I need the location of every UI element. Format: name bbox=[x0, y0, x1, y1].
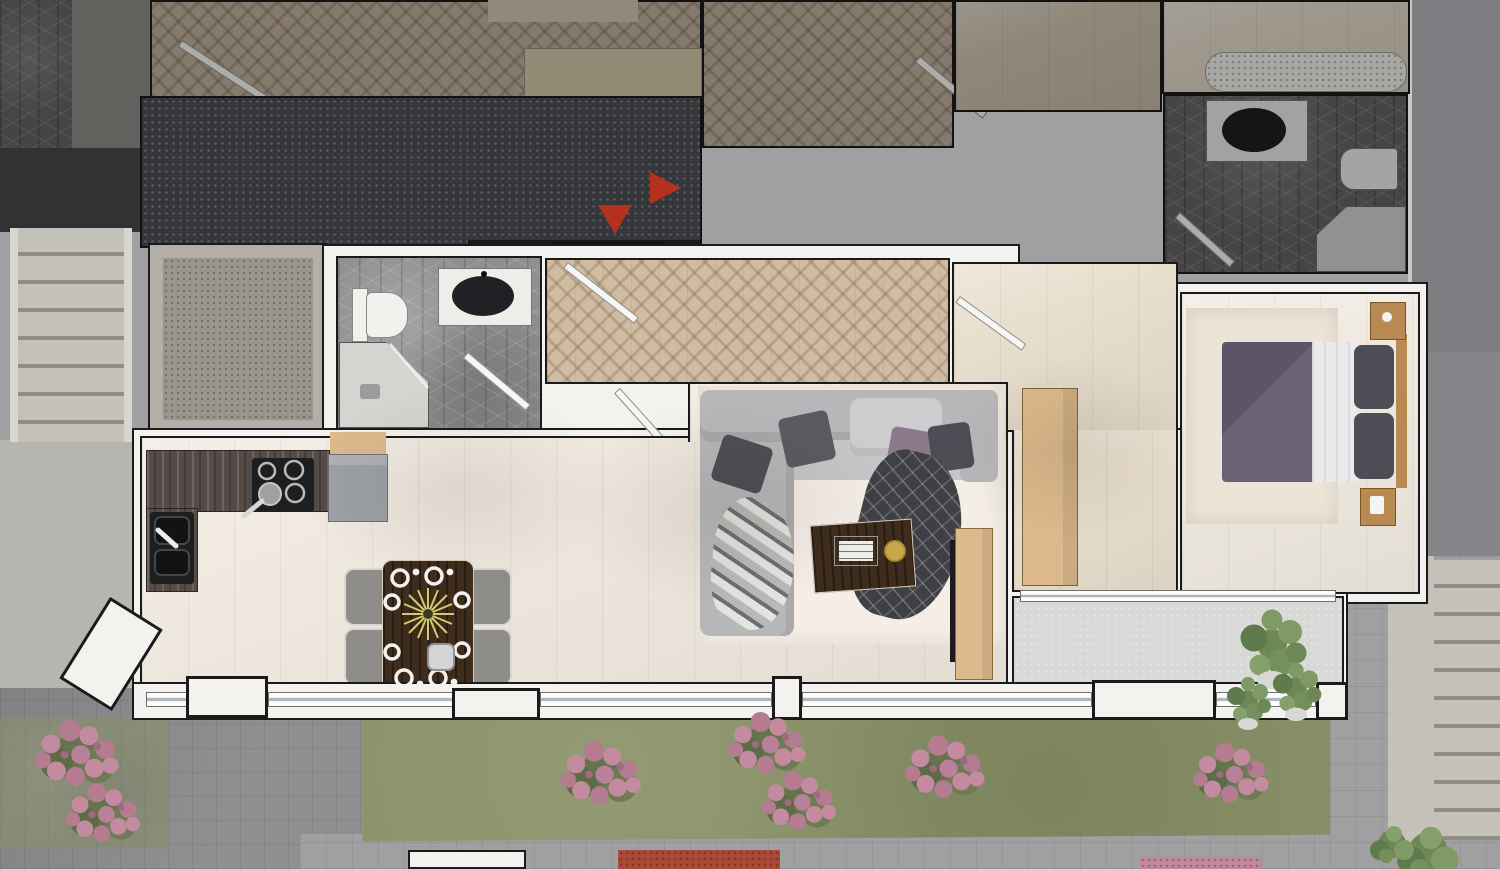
window-3 bbox=[540, 692, 772, 707]
neighbor-room-wood bbox=[954, 0, 1162, 112]
shadow-band-left bbox=[0, 148, 150, 232]
dining-chair-4 bbox=[470, 628, 512, 686]
elevator-cab bbox=[163, 258, 313, 420]
entrance-hall bbox=[545, 258, 950, 384]
facade-pier-2 bbox=[452, 688, 540, 720]
bed-headboard bbox=[1396, 334, 1407, 488]
kitchen-sink bbox=[150, 512, 194, 584]
facade-pier-1 bbox=[186, 676, 268, 718]
planter-box bbox=[408, 850, 526, 869]
nightstand-lamp-top bbox=[1382, 312, 1392, 322]
entrance-arrow-right-icon bbox=[650, 172, 681, 204]
neighbor-bench bbox=[1205, 52, 1407, 92]
washbasin bbox=[452, 276, 514, 316]
toilet-bowl bbox=[366, 292, 408, 338]
watermark-shade-2 bbox=[560, 400, 900, 610]
bed-duvet-purple bbox=[1222, 342, 1314, 482]
neighbor-bed bbox=[524, 48, 702, 100]
top-left-floor-fragment bbox=[72, 0, 150, 150]
neighbor-room-2 bbox=[702, 0, 954, 148]
neighbor-bed-headboard bbox=[488, 0, 638, 22]
exterior-steps bbox=[1432, 560, 1500, 840]
staircase bbox=[10, 228, 132, 442]
facade-pier-4 bbox=[1092, 680, 1216, 720]
facade-pier-5 bbox=[1316, 682, 1348, 720]
flower-bed-red bbox=[618, 850, 780, 869]
bed-pillow-top bbox=[1354, 345, 1394, 409]
flower-bed-pink bbox=[1140, 857, 1262, 869]
neighbor-basin bbox=[1222, 108, 1286, 152]
window-5 bbox=[1216, 692, 1316, 707]
lawn-strip bbox=[362, 709, 1343, 842]
lawn-patch-left bbox=[0, 718, 170, 848]
dining-chair-2 bbox=[344, 628, 386, 686]
neighbor-toilet bbox=[1340, 148, 1398, 190]
tv-cabinet bbox=[955, 528, 993, 680]
window-4 bbox=[802, 692, 1092, 707]
window-2 bbox=[268, 692, 454, 707]
window-1 bbox=[146, 692, 188, 707]
floorplan-render bbox=[0, 0, 1500, 869]
bed-duvet-white bbox=[1312, 342, 1358, 482]
entrance-arrow-down-icon bbox=[598, 205, 632, 234]
bed-pillow-bottom bbox=[1354, 413, 1394, 479]
watermark-shade-3 bbox=[950, 360, 1190, 540]
nightstand-lamp-bottom bbox=[1370, 496, 1384, 514]
facade-pier-3 bbox=[772, 676, 802, 720]
balcony-sliding-door bbox=[1020, 590, 1336, 602]
